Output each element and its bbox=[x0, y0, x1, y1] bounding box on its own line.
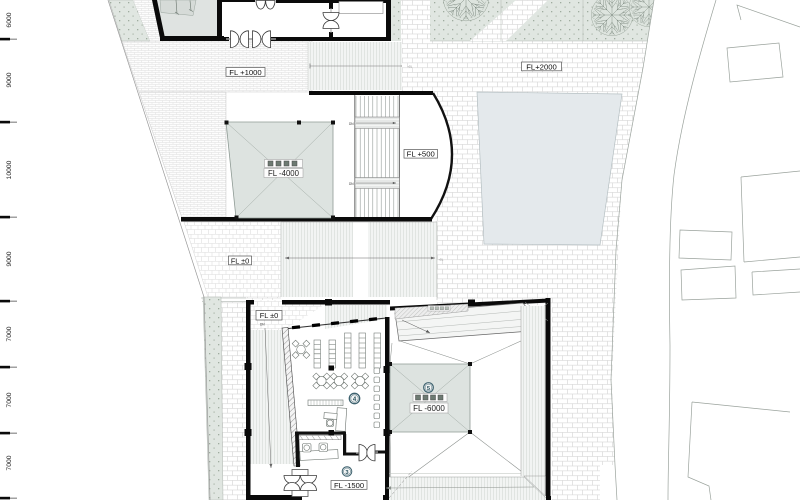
svg-text:FL+2000: FL+2000 bbox=[526, 62, 557, 71]
svg-text:FL ±0: FL ±0 bbox=[260, 311, 279, 320]
svg-text:FL +1000: FL +1000 bbox=[229, 68, 261, 77]
svg-text:7000: 7000 bbox=[6, 326, 13, 341]
svg-text:7000: 7000 bbox=[6, 455, 13, 470]
svg-text:FL ±0: FL ±0 bbox=[231, 256, 249, 265]
svg-text:FL -1500: FL -1500 bbox=[334, 481, 364, 490]
svg-text:9000: 9000 bbox=[6, 72, 13, 87]
svg-text:10000: 10000 bbox=[6, 160, 13, 179]
svg-text:DN: DN bbox=[260, 323, 265, 327]
svg-text:6000: 6000 bbox=[6, 12, 13, 27]
svg-text:FL -4000: FL -4000 bbox=[268, 169, 300, 178]
svg-text:DN: DN bbox=[349, 182, 354, 186]
svg-text:9000: 9000 bbox=[6, 251, 13, 266]
svg-text:FL +500: FL +500 bbox=[407, 150, 435, 159]
svg-text:+DL: +DL bbox=[439, 257, 444, 261]
svg-text:7000: 7000 bbox=[6, 392, 13, 407]
svg-text:+DL: +DL bbox=[408, 64, 413, 68]
svg-text:DN: DN bbox=[349, 122, 354, 126]
svg-text:FL -6000: FL -6000 bbox=[413, 404, 445, 413]
